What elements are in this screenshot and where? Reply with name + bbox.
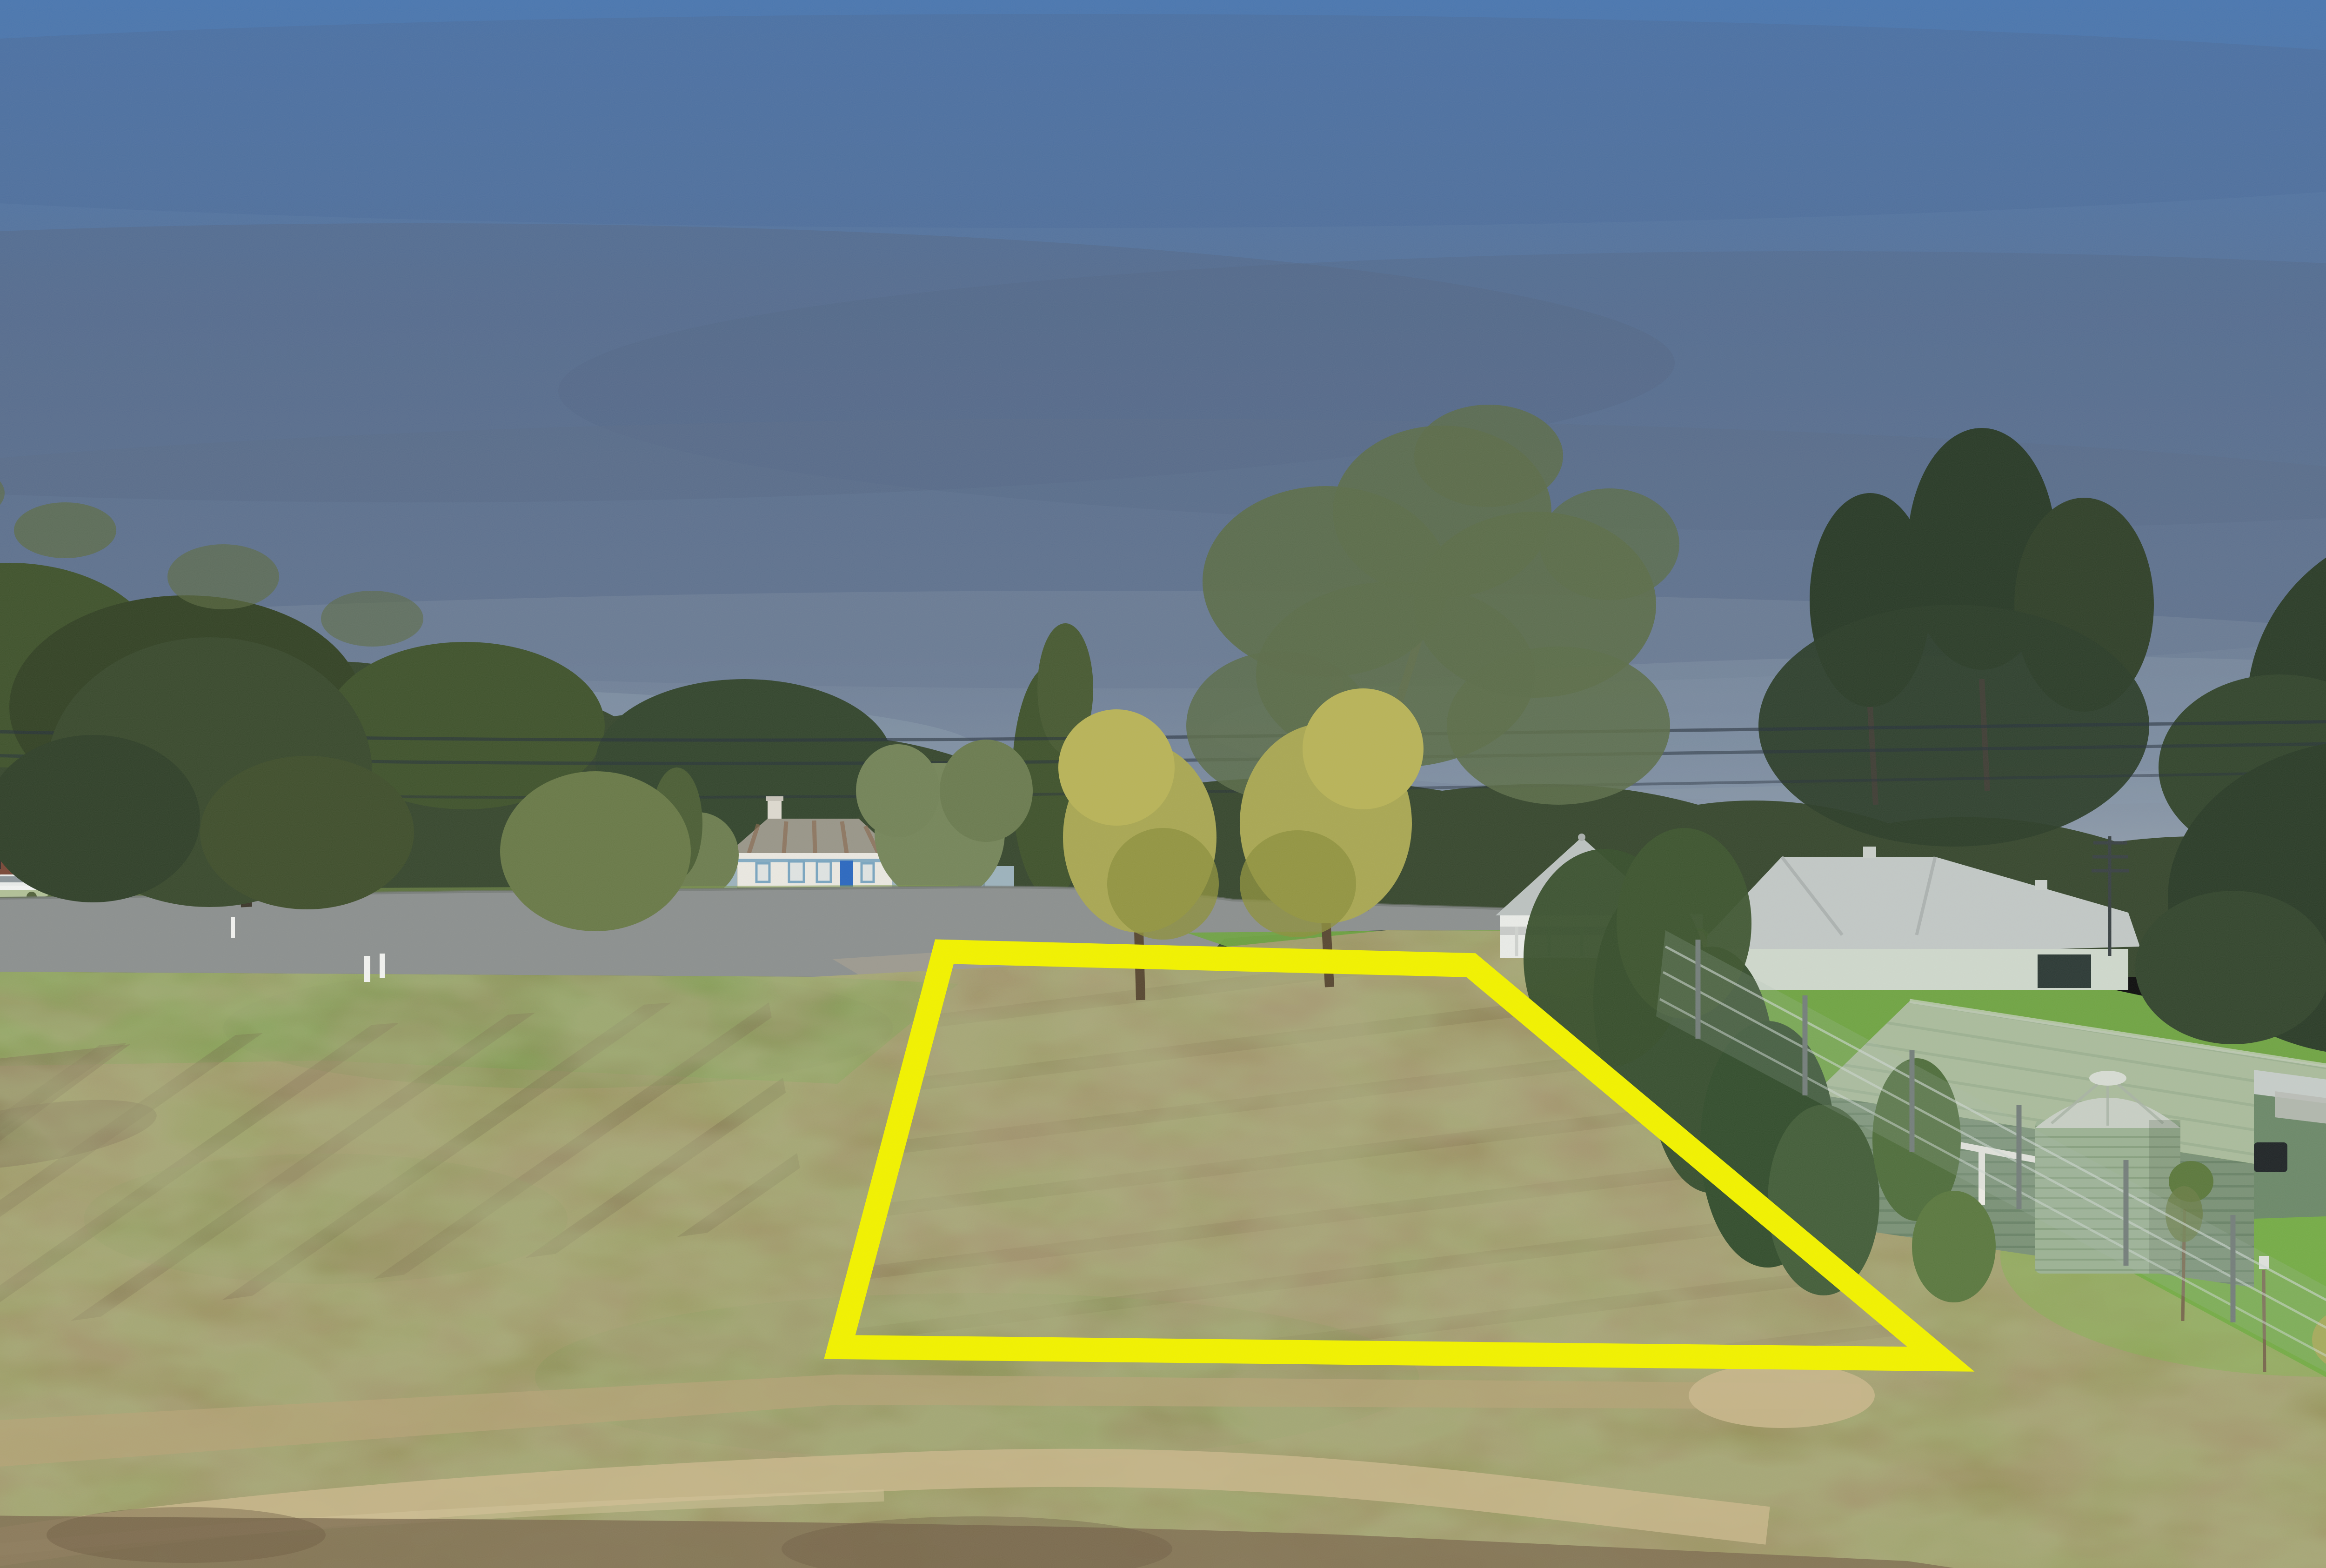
grain-overlay	[0, 0, 2326, 1568]
scene-svg	[0, 0, 2326, 1568]
aerial-photo-canvas	[0, 0, 2326, 1568]
